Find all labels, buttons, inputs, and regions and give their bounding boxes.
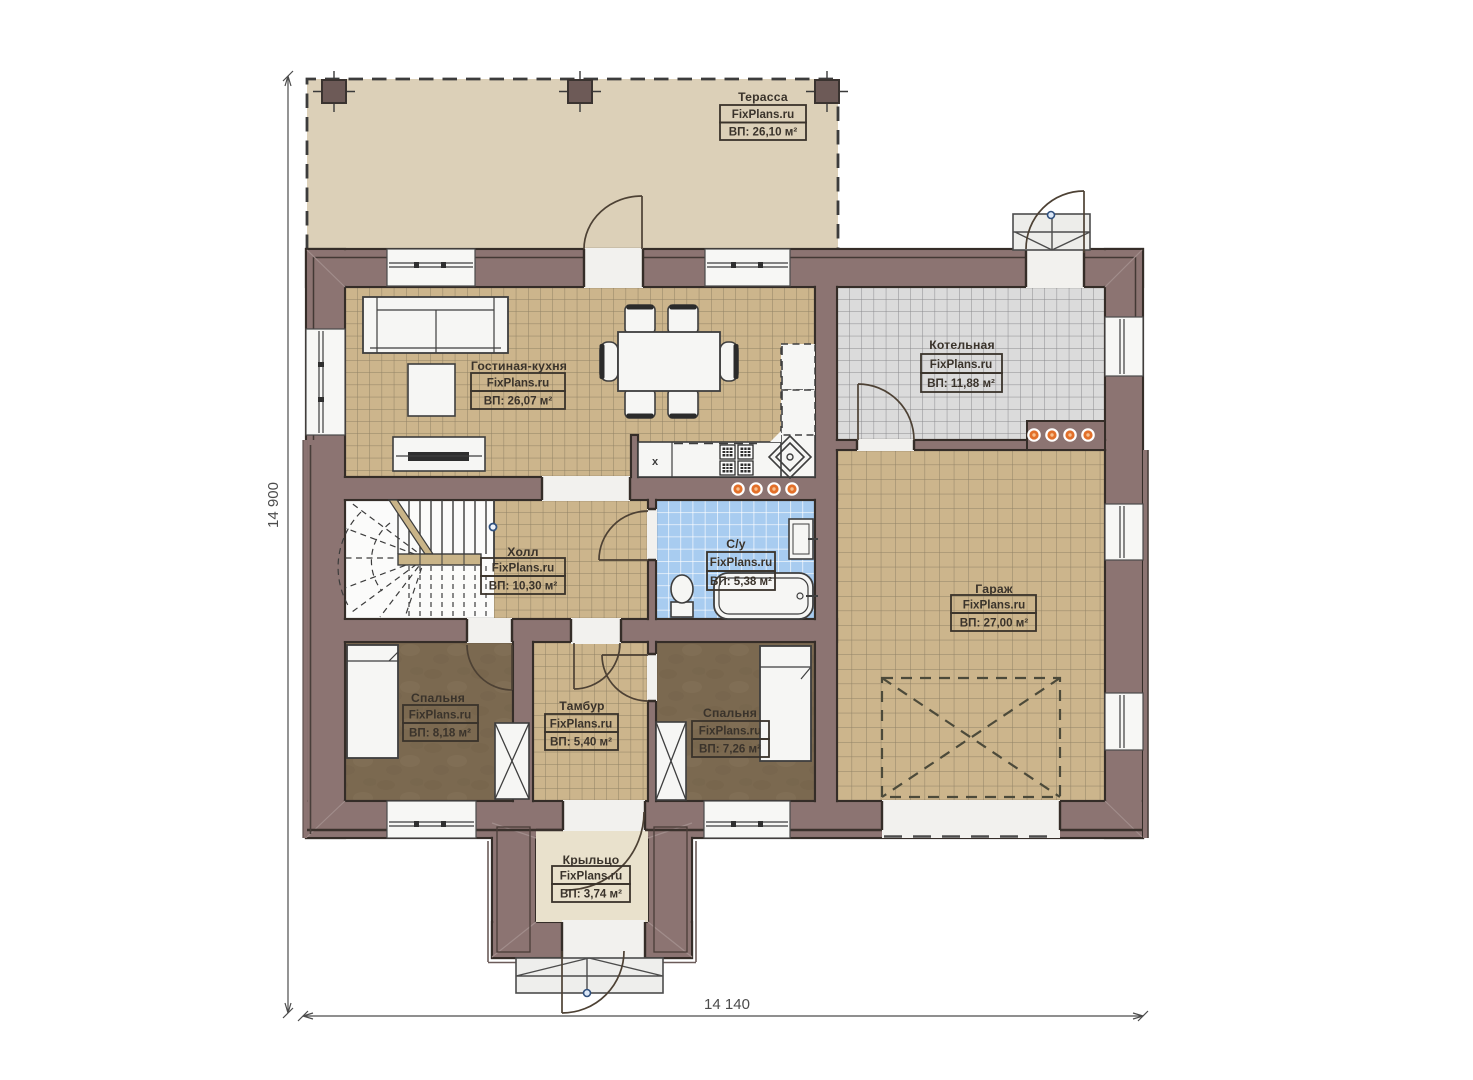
svg-text:14 900: 14 900	[265, 482, 282, 528]
svg-text:FixPlans.ru: FixPlans.ru	[732, 108, 795, 121]
svg-text:FixPlans.ru: FixPlans.ru	[560, 870, 623, 883]
svg-text:ВП: 26,10 м²: ВП: 26,10 м²	[729, 126, 798, 139]
svg-text:Терасса: Терасса	[738, 90, 788, 104]
svg-text:FixPlans.ru: FixPlans.ru	[699, 725, 762, 738]
svg-text:x: x	[652, 456, 659, 468]
svg-text:Гостиная-кухня: Гостиная-кухня	[471, 359, 567, 373]
svg-text:FixPlans.ru: FixPlans.ru	[710, 556, 773, 569]
svg-text:Крыльцо: Крыльцо	[563, 853, 620, 867]
svg-text:FixPlans.ru: FixPlans.ru	[487, 377, 550, 390]
svg-text:ВП: 7,26 м²: ВП: 7,26 м²	[699, 743, 761, 756]
svg-text:14 140: 14 140	[704, 996, 750, 1013]
svg-text:ВП: 5,40 м²: ВП: 5,40 м²	[550, 736, 612, 749]
svg-text:ВП: 8,18 м²: ВП: 8,18 м²	[409, 727, 471, 740]
svg-text:FixPlans.ru: FixPlans.ru	[492, 562, 555, 575]
svg-text:ВП: 3,74 м²: ВП: 3,74 м²	[560, 888, 622, 901]
svg-text:ВП: 11,88 м²: ВП: 11,88 м²	[927, 377, 995, 390]
svg-text:FixPlans.ru: FixPlans.ru	[409, 709, 472, 722]
svg-text:ВП: 5,38 м²: ВП: 5,38 м²	[710, 575, 772, 588]
svg-text:ВП: 27,00 м²: ВП: 27,00 м²	[960, 617, 1029, 630]
svg-text:Гараж: Гараж	[975, 582, 1013, 596]
svg-text:FixPlans.ru: FixPlans.ru	[963, 599, 1026, 612]
svg-text:Тамбур: Тамбур	[559, 699, 604, 713]
svg-text:ВП: 10,30 м²: ВП: 10,30 м²	[489, 580, 558, 593]
svg-text:Холл: Холл	[507, 545, 538, 559]
svg-text:С/у: С/у	[726, 537, 746, 551]
svg-text:Спальня: Спальня	[703, 706, 757, 720]
svg-text:FixPlans.ru: FixPlans.ru	[930, 358, 993, 371]
svg-text:FixPlans.ru: FixPlans.ru	[550, 718, 613, 731]
svg-text:ВП: 26,07 м²: ВП: 26,07 м²	[484, 395, 553, 408]
svg-text:Котельная: Котельная	[929, 338, 995, 352]
svg-text:Спальня: Спальня	[411, 691, 465, 705]
